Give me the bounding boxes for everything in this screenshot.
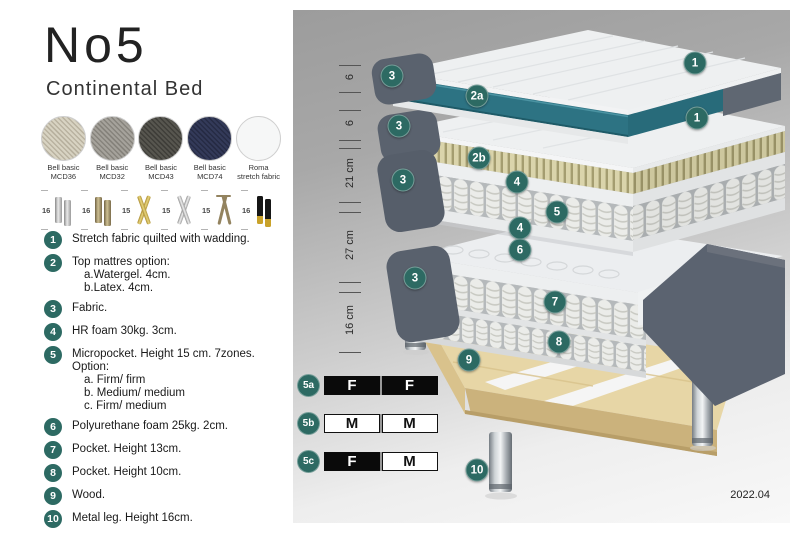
feature-number-badge: 9	[44, 487, 62, 505]
firmness-row-id: 5b	[297, 412, 320, 435]
leg-option: 15	[120, 184, 160, 236]
feature-text: HR foam 30kg. 3cm.	[72, 323, 177, 341]
version-label: 2022.04	[730, 489, 770, 501]
feature-number-badge: 5	[44, 346, 62, 364]
cylinder-bronze-icon	[93, 192, 117, 228]
feature-text: Polyurethane foam 25kg. 2cm.	[72, 418, 228, 436]
leg-option: 16	[240, 184, 280, 236]
leg-shape	[257, 196, 263, 224]
callout-badge: 5	[546, 201, 569, 224]
firmness-cell: F	[382, 376, 438, 395]
feature-text: Micropocket. Height 15 cm. 7zones. Optio…	[72, 346, 294, 413]
feature-main-text: Polyurethane foam 25kg. 2cm.	[72, 420, 228, 433]
firmness-cell: M	[382, 414, 438, 433]
callout-badge: 8	[548, 331, 571, 354]
page-title: No5	[44, 16, 148, 74]
leg-height-label: 16	[82, 206, 93, 215]
callout-badge: 3	[392, 169, 415, 192]
dimension-label: 27 cm	[344, 223, 356, 267]
firmness-table: 5aFF5bMM5cFM	[297, 374, 438, 488]
leg-options: 161615151516	[40, 184, 284, 236]
feature-main-text: HR foam 30kg. 3cm.	[72, 325, 177, 338]
fabric-swatch: Bell basicMCD32	[89, 116, 136, 181]
feature-row: 3Fabric.	[44, 300, 294, 318]
callout-badge: 4	[509, 217, 532, 240]
leg-option: 16	[40, 184, 80, 236]
leg-option: 15	[200, 184, 240, 236]
metal-leg-front	[485, 432, 517, 500]
firmness-cell: M	[324, 414, 380, 433]
feature-row: 1Stretch fabric quilted with wadding.	[44, 231, 294, 249]
cross-silver-icon	[173, 192, 197, 228]
feature-list: 1Stretch fabric quilted with wadding.2To…	[44, 231, 294, 533]
feature-text: Fabric.	[72, 300, 107, 318]
feature-number-badge: 3	[44, 300, 62, 318]
cylinder-silver-icon	[53, 192, 77, 228]
firmness-cell: F	[324, 452, 380, 471]
leg-height-label: 16	[42, 206, 53, 215]
callout-badge: 3	[381, 65, 404, 88]
fabric-name-line2: MCD43	[138, 173, 185, 182]
feature-main-text: Pocket. Height 10cm.	[72, 466, 181, 479]
feature-sub-text: a.Watergel. 4cm.	[72, 269, 171, 282]
firmness-bar: FF	[324, 376, 438, 395]
feature-main-text: Pocket. Height 13cm.	[72, 443, 181, 456]
callout-badge: 1	[686, 107, 709, 130]
callout-badge: 10	[466, 459, 489, 482]
feature-main-text: Micropocket. Height 15 cm. 7zones. Optio…	[72, 348, 294, 374]
callout-badge: 4	[506, 171, 529, 194]
leg-shape	[95, 197, 102, 223]
feature-main-text: Stretch fabric quilted with wadding.	[72, 233, 250, 246]
leg-height-label: 15	[122, 206, 133, 215]
fabric-swatch-label: Romastretch fabric	[235, 164, 282, 181]
feature-row: 7Pocket. Height 13cm.	[44, 441, 294, 459]
callout-badge: 3	[404, 267, 427, 290]
feature-text: Metal leg. Height 16cm.	[72, 510, 193, 528]
ruler-tick	[339, 282, 361, 283]
ruler-tick	[339, 202, 361, 203]
leg-shape	[216, 195, 231, 197]
leg-shape	[104, 200, 111, 226]
fabric-swatch-circle	[90, 116, 135, 161]
callout-badge: 7	[544, 291, 567, 314]
cross-gold-icon	[133, 192, 157, 228]
product-sheet: No5 Continental Bed Bell basicMCD36Bell …	[0, 0, 800, 533]
feature-main-text: Metal leg. Height 16cm.	[72, 512, 193, 525]
fabric-swatch-label: Bell basicMCD36	[40, 164, 87, 181]
dimension-label: 6	[344, 55, 356, 99]
hairpin-icon	[213, 192, 237, 228]
dimension-label: 16 cm	[344, 298, 356, 342]
fabric-swatch: Bell basicMCD36	[40, 116, 87, 181]
fabric-swatch: Bell basicMCD43	[138, 116, 185, 181]
dimension-label: 21 cm	[344, 151, 356, 195]
callout-badge: 6	[509, 239, 532, 262]
feature-main-text: Top mattres option:	[72, 256, 171, 269]
fabric-swatch-circle	[41, 116, 86, 161]
feature-sub-text: b. Medium/ medium	[72, 387, 294, 400]
ruler-tick	[339, 292, 361, 293]
firmness-cell: M	[382, 452, 438, 471]
fabric-swatch-label: Bell basicMCD43	[138, 164, 185, 181]
feature-main-text: Wood.	[72, 489, 105, 502]
feature-number-badge: 6	[44, 418, 62, 436]
leg-shape	[265, 199, 271, 227]
leg-height-label: 15	[202, 206, 213, 215]
callout-badge: 1	[684, 52, 707, 75]
feature-sub-text: a. Firm/ firm	[72, 374, 294, 387]
feature-row: 9Wood.	[44, 487, 294, 505]
ruler-tick	[339, 212, 361, 213]
feature-text: Pocket. Height 10cm.	[72, 464, 181, 482]
leg-option: 16	[80, 184, 120, 236]
feature-text: Pocket. Height 13cm.	[72, 441, 181, 459]
feature-row: 6Polyurethane foam 25kg. 2cm.	[44, 418, 294, 436]
fabric-swatch-circle	[236, 116, 281, 161]
feature-text: Wood.	[72, 487, 105, 505]
firmness-row: 5cFM	[297, 450, 438, 473]
block-black-gold-icon	[253, 192, 277, 228]
fabric-swatch: Romastretch fabric	[235, 116, 282, 181]
fabric-swatch-circle	[138, 116, 183, 161]
feature-number-badge: 8	[44, 464, 62, 482]
firmness-bar: MM	[324, 414, 438, 433]
firmness-row-id: 5c	[297, 450, 320, 473]
fabric-swatch-label: Bell basicMCD32	[89, 164, 136, 181]
feature-number-badge: 2	[44, 254, 62, 272]
feature-row: 5Micropocket. Height 15 cm. 7zones. Opti…	[44, 346, 294, 413]
leg-height-label: 15	[162, 206, 173, 215]
fabric-name-line2: MCD32	[89, 173, 136, 182]
fabric-swatch: Bell basicMCD74	[186, 116, 233, 181]
callout-badge: 9	[458, 349, 481, 372]
firmness-row: 5aFF	[297, 374, 438, 397]
feature-number-badge: 1	[44, 231, 62, 249]
fabric-swatch-label: Bell basicMCD74	[186, 164, 233, 181]
fabric-name-line2: stretch fabric	[235, 173, 282, 182]
bed-diagram: 6621 cm27 cm16 cm 1132a32b45346738910 5a…	[293, 10, 790, 523]
feature-sub-text: b.Latex. 4cm.	[72, 282, 171, 295]
feature-sub-text: c. Firm/ medium	[72, 400, 294, 413]
feature-number-badge: 10	[44, 510, 62, 528]
page-subtitle: Continental Bed	[46, 78, 203, 101]
firmness-cell: F	[324, 376, 380, 395]
ruler-tick	[339, 148, 361, 149]
firmness-row: 5bMM	[297, 412, 438, 435]
leg-shape	[64, 200, 71, 226]
fabric-name-line2: MCD74	[186, 173, 233, 182]
feature-row: 8Pocket. Height 10cm.	[44, 464, 294, 482]
feature-number-badge: 7	[44, 441, 62, 459]
callout-badge: 3	[388, 115, 411, 138]
feature-row: 2Top mattres option:a.Watergel. 4cm.b.La…	[44, 254, 294, 295]
firmness-row-id: 5a	[297, 374, 320, 397]
leg-shape	[55, 197, 62, 223]
firmness-bar: FM	[324, 452, 438, 471]
callout-badge: 2a	[466, 85, 489, 108]
feature-row: 4HR foam 30kg. 3cm.	[44, 323, 294, 341]
feature-main-text: Fabric.	[72, 302, 107, 315]
feature-row: 10Metal leg. Height 16cm.	[44, 510, 294, 528]
fabric-name-line2: MCD36	[40, 173, 87, 182]
leg-option: 15	[160, 184, 200, 236]
ruler-tick	[339, 352, 361, 353]
feature-text: Top mattres option:a.Watergel. 4cm.b.Lat…	[72, 254, 171, 295]
fabric-swatch-circle	[187, 116, 232, 161]
fabric-swatches: Bell basicMCD36Bell basicMCD32Bell basic…	[40, 116, 282, 181]
callout-badge: 2b	[468, 147, 491, 170]
feature-number-badge: 4	[44, 323, 62, 341]
feature-text: Stretch fabric quilted with wadding.	[72, 231, 250, 249]
leg-height-label: 16	[242, 206, 253, 215]
dimension-label: 6	[344, 101, 356, 145]
